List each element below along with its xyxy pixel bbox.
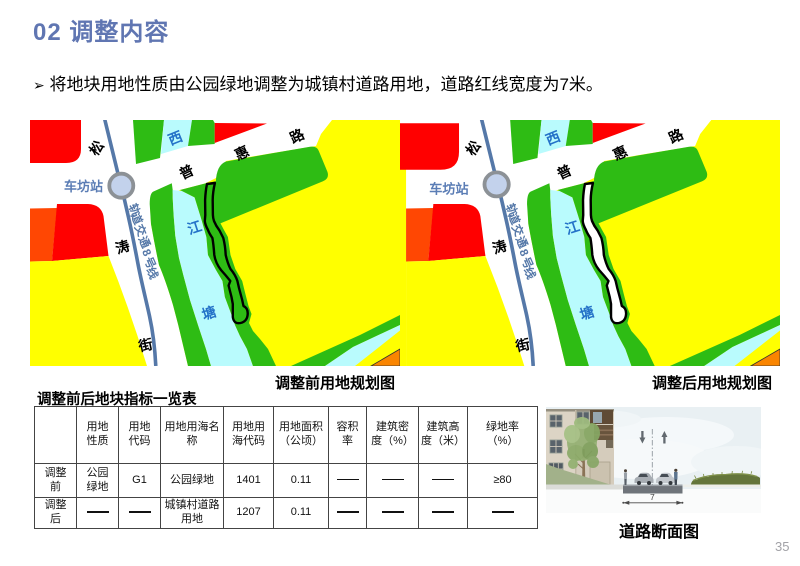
svg-text:7: 7 [650,492,655,502]
svg-text:车坊站: 车坊站 [64,179,103,194]
svg-text:车坊站: 车坊站 [429,182,468,197]
